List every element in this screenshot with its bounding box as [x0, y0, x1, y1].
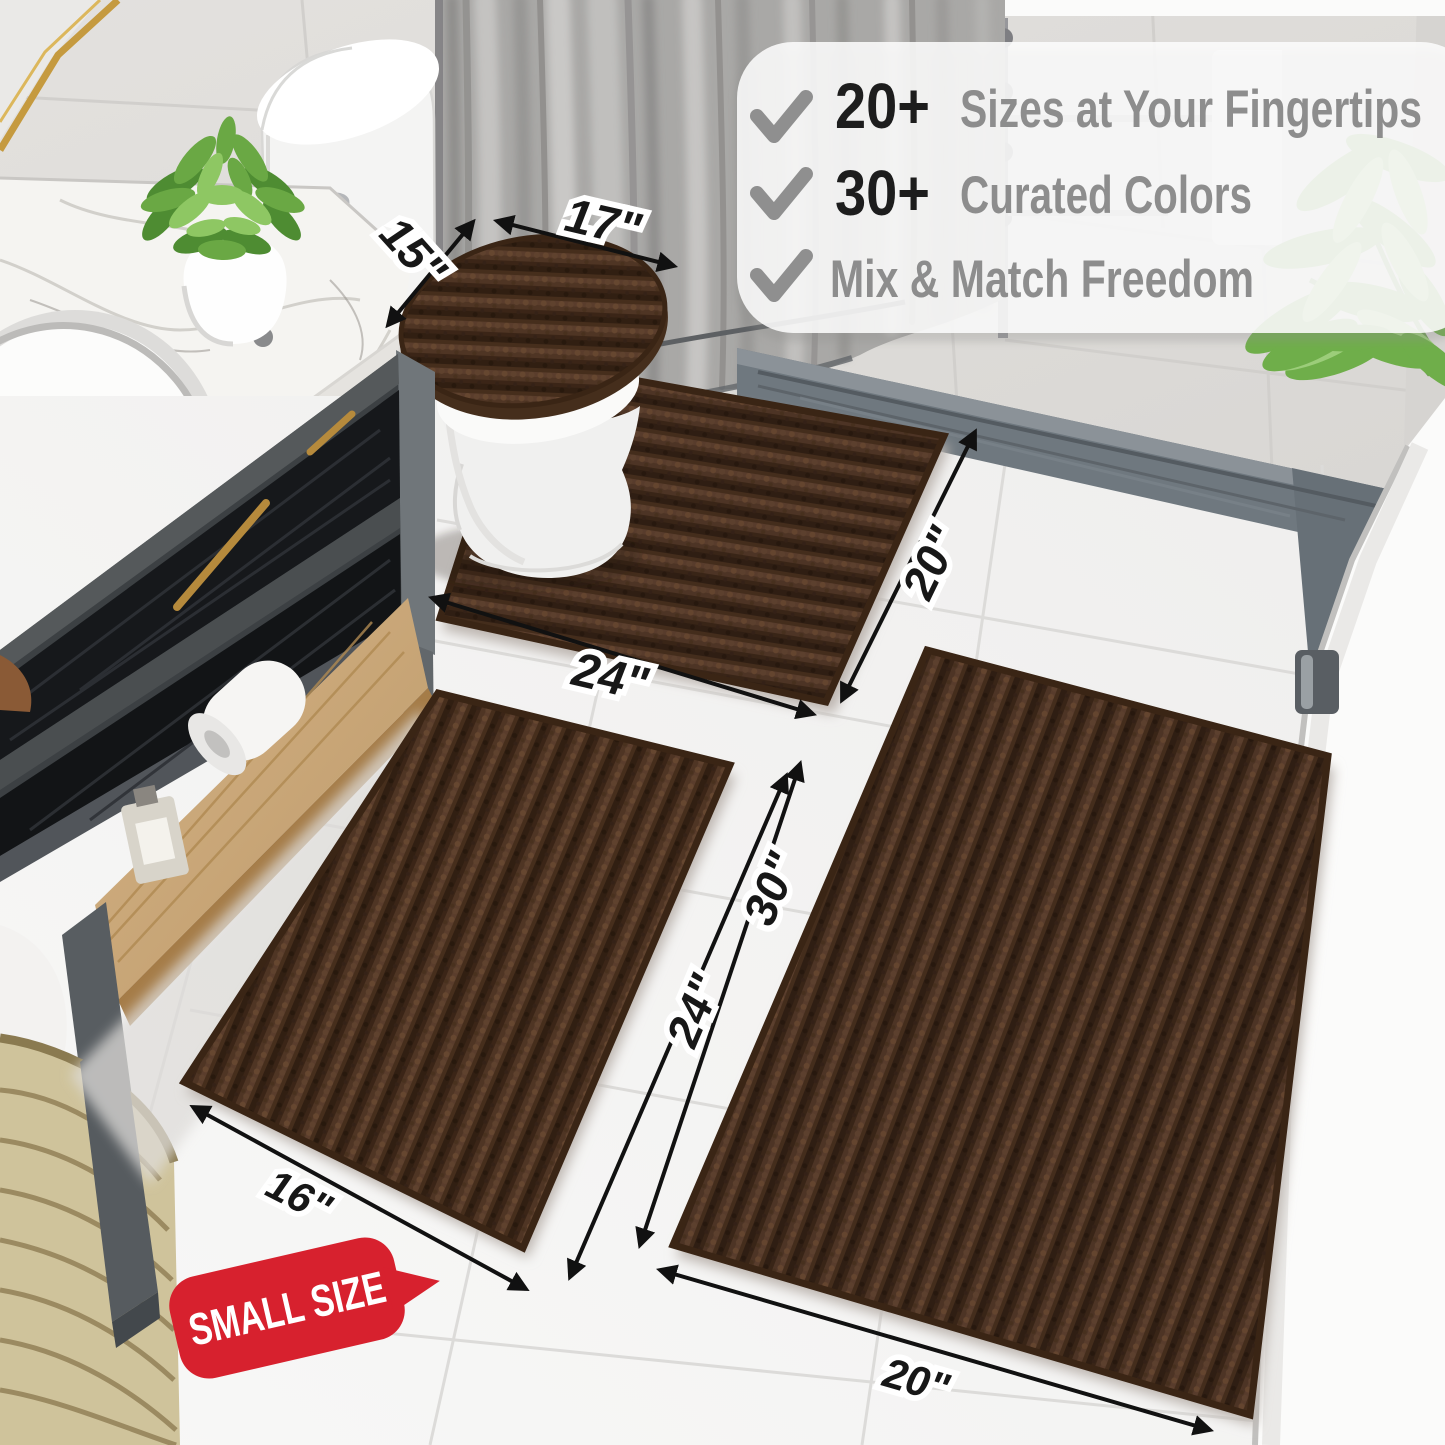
svg-text:Curated Colors: Curated Colors — [960, 166, 1252, 225]
svg-text:20+: 20+ — [835, 70, 930, 142]
svg-text:30+: 30+ — [835, 157, 930, 229]
svg-text:Mix & Match Freedom: Mix & Match Freedom — [830, 250, 1254, 309]
svg-text:Sizes at Your Fingertips: Sizes at Your Fingertips — [960, 80, 1422, 139]
